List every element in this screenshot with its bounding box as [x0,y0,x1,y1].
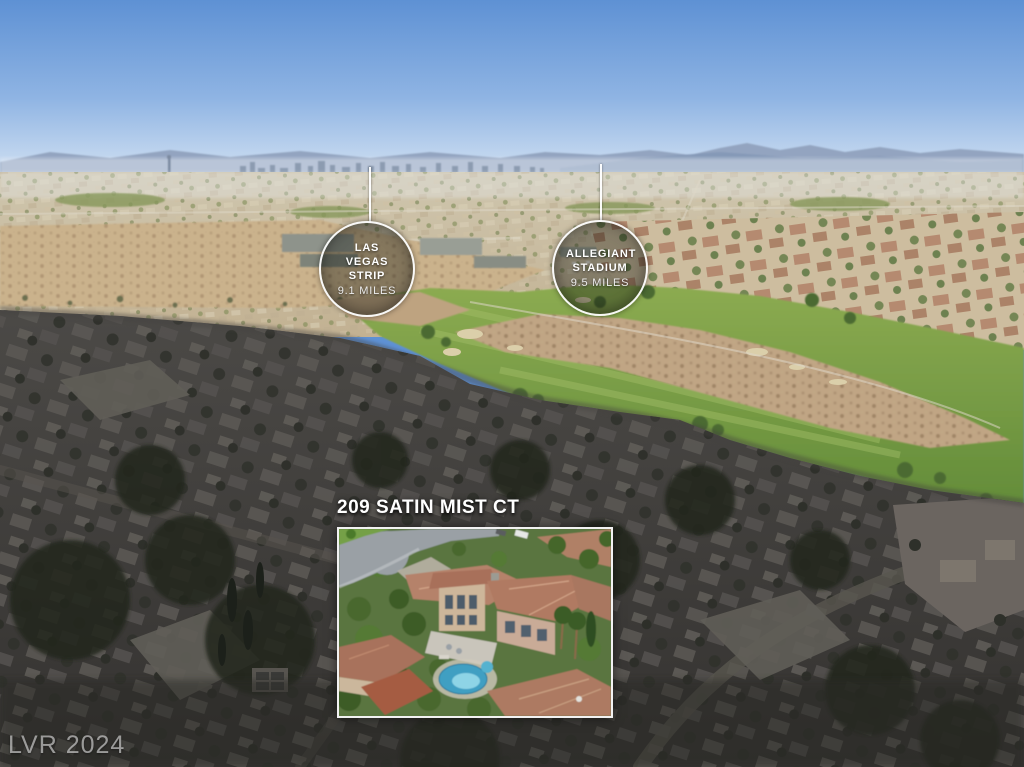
callout-leader-line-stadium [600,164,602,222]
inset-photo [339,529,611,716]
aerial-listing-photo: LAS VEGAS STRIP 9.1 MILES ALLEGIANT STAD… [0,0,1024,767]
callout-leader-line-strip [369,167,371,223]
callout-allegiant-stadium: ALLEGIANT STADIUM 9.5 MILES [552,220,648,316]
callout-distance: 9.1 MILES [338,285,397,297]
property-address-label: 209 SATIN MIST CT [337,497,519,519]
spa [481,661,493,673]
watermark: LVR 2024 [8,731,125,760]
inset-photo-frame [337,527,613,718]
callout-distance: 9.5 MILES [571,277,630,289]
callout-las-vegas-strip: LAS VEGAS STRIP 9.1 MILES [319,221,415,317]
chimney [491,573,499,581]
callout-title: LAS VEGAS STRIP [333,241,401,284]
callout-title: ALLEGIANT STADIUM [566,247,634,276]
